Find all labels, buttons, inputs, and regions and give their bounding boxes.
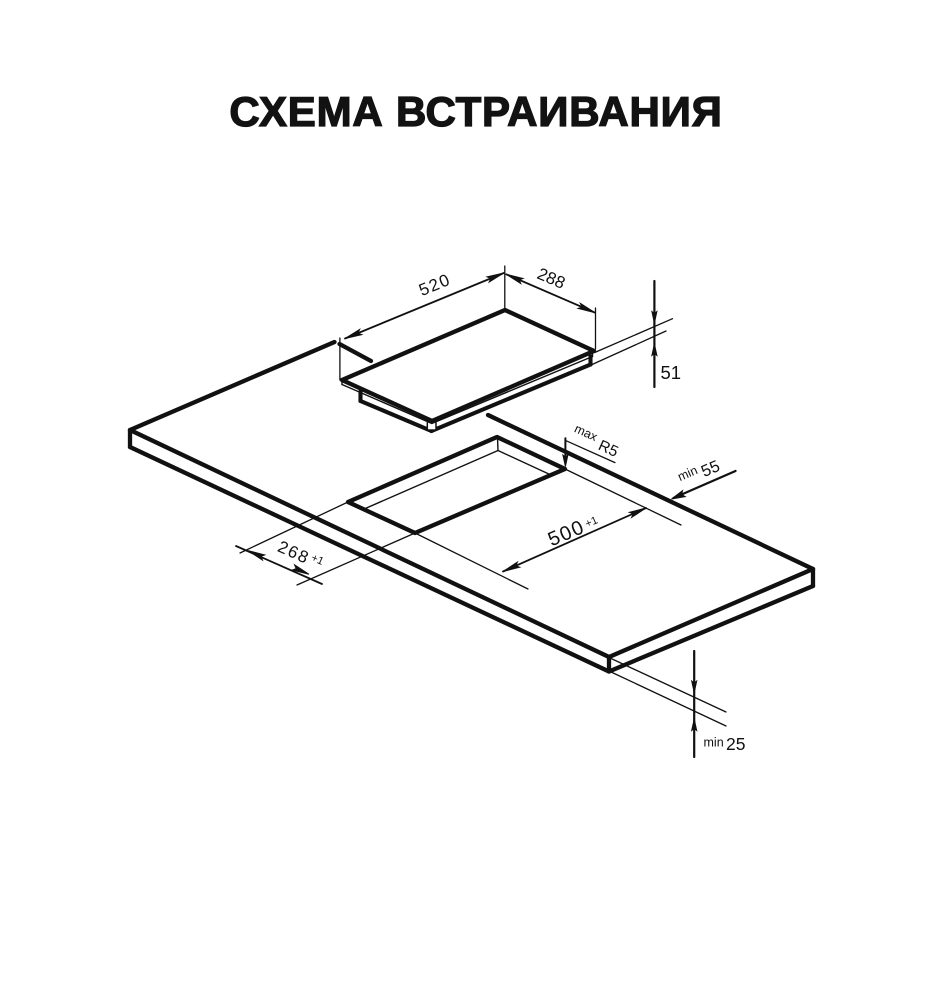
svg-text:+1: +1 (309, 552, 325, 568)
svg-text:268: 268 (275, 537, 313, 568)
svg-text:51: 51 (661, 362, 682, 383)
svg-text:25: 25 (726, 734, 745, 754)
svg-text:min: min (676, 463, 700, 484)
svg-text:R5: R5 (596, 437, 621, 461)
svg-text:min: min (704, 736, 724, 750)
svg-text:max: max (572, 422, 600, 445)
